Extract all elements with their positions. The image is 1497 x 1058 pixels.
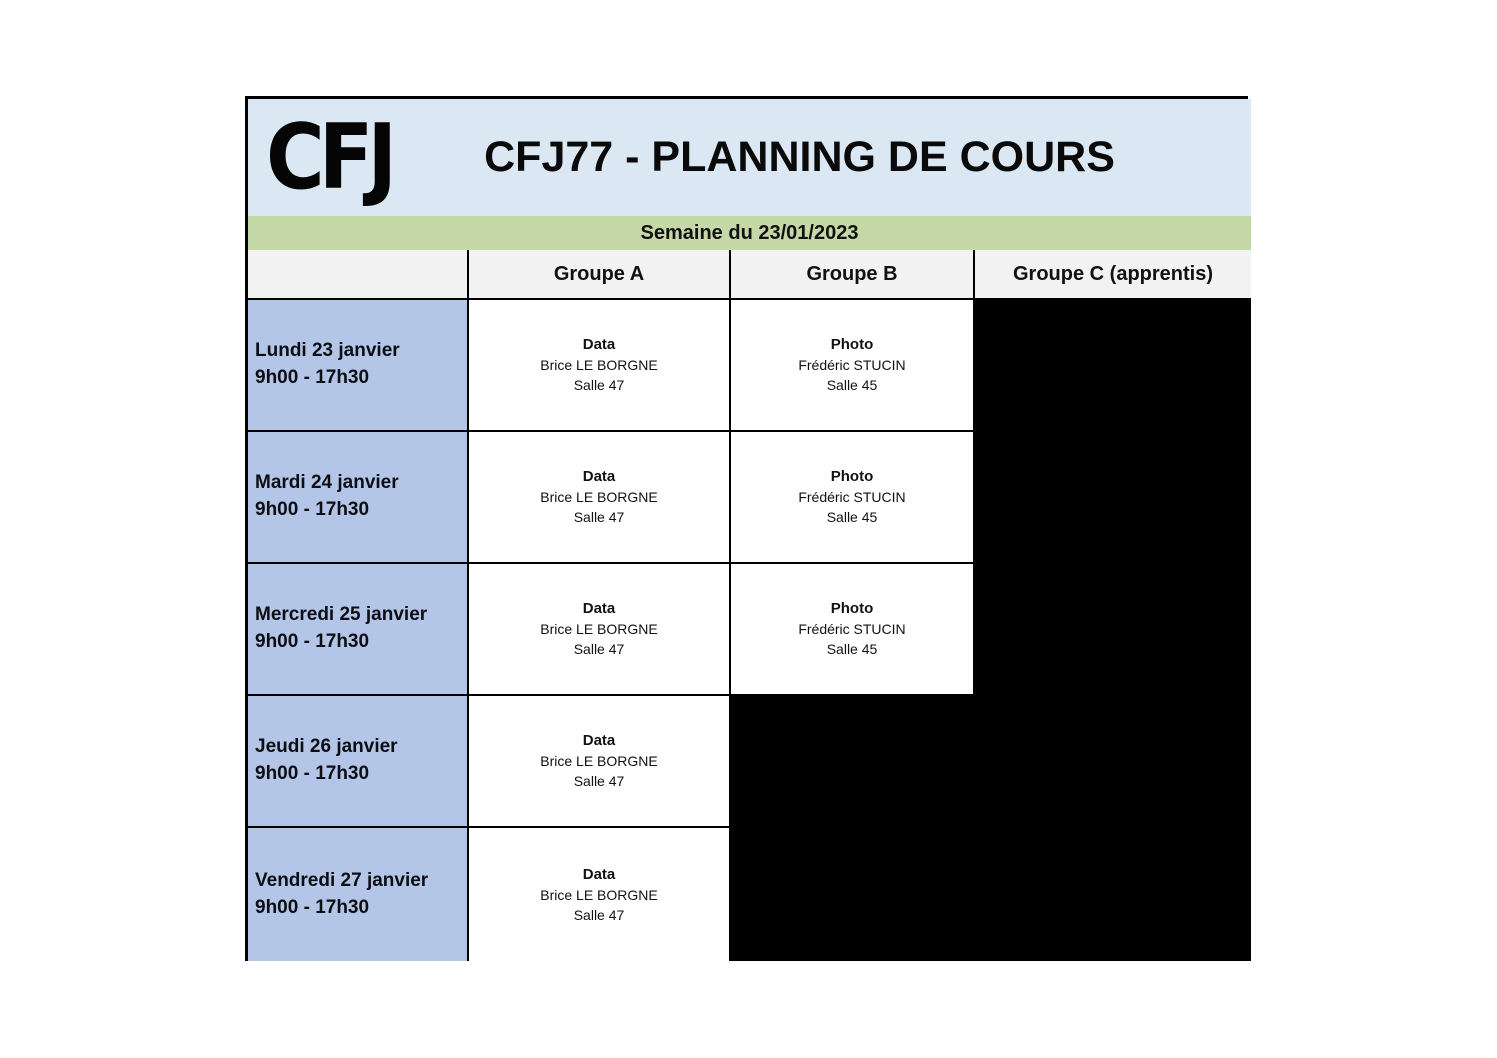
course-teacher: Brice LE BORGNE <box>540 885 657 905</box>
cfj-logo-text: CFJ <box>266 113 391 203</box>
day-label: Jeudi 26 janvier <box>255 734 467 761</box>
day-cell-mercredi: Mercredi 25 janvier 9h00 - 17h30 <box>248 564 469 696</box>
course-room: Salle 45 <box>827 639 878 659</box>
course-subject: Data <box>583 467 616 487</box>
course-teacher: Frédéric STUCIN <box>798 619 905 639</box>
course-cell-lundi-group-a: Data Brice LE BORGNE Salle 47 <box>469 300 731 432</box>
course-subject: Photo <box>831 335 874 355</box>
course-teacher: Brice LE BORGNE <box>540 751 657 771</box>
course-subject: Data <box>583 335 616 355</box>
day-label: Vendredi 27 janvier <box>255 868 467 895</box>
blocked-cell-group-b-jeudi-vendredi <box>731 696 975 961</box>
course-cell-mercredi-group-b: Photo Frédéric STUCIN Salle 45 <box>731 564 975 696</box>
day-label: Mardi 24 janvier <box>255 470 467 497</box>
course-subject: Data <box>583 599 616 619</box>
course-room: Salle 47 <box>574 375 625 395</box>
course-room: Salle 47 <box>574 639 625 659</box>
column-header-group-a: Groupe A <box>469 250 731 300</box>
column-header-group-b: Groupe B <box>731 250 975 300</box>
course-teacher: Brice LE BORGNE <box>540 355 657 375</box>
course-room: Salle 45 <box>827 507 878 527</box>
blocked-cell-group-c-week <box>975 300 1251 961</box>
page-title: CFJ77 - PLANNING DE COURS <box>408 133 1251 182</box>
course-subject: Photo <box>831 599 874 619</box>
course-subject: Photo <box>831 467 874 487</box>
day-cell-mardi: Mardi 24 janvier 9h00 - 17h30 <box>248 432 469 564</box>
planning-table: CFJ CFJ77 - PLANNING DE COURS Semaine du… <box>245 96 1248 961</box>
day-time: 9h00 - 17h30 <box>255 895 467 922</box>
course-cell-mardi-group-b: Photo Frédéric STUCIN Salle 45 <box>731 432 975 564</box>
day-cell-jeudi: Jeudi 26 janvier 9h00 - 17h30 <box>248 696 469 828</box>
course-subject: Data <box>583 865 616 885</box>
course-cell-jeudi-group-a: Data Brice LE BORGNE Salle 47 <box>469 696 731 828</box>
day-time: 9h00 - 17h30 <box>255 497 467 524</box>
course-teacher: Brice LE BORGNE <box>540 487 657 507</box>
cfj-logo: CFJ <box>248 99 408 216</box>
course-teacher: Brice LE BORGNE <box>540 619 657 639</box>
course-cell-mardi-group-a: Data Brice LE BORGNE Salle 47 <box>469 432 731 564</box>
column-header-day <box>248 250 469 300</box>
day-time: 9h00 - 17h30 <box>255 629 467 656</box>
week-banner: Semaine du 23/01/2023 <box>248 216 1251 250</box>
course-cell-mercredi-group-a: Data Brice LE BORGNE Salle 47 <box>469 564 731 696</box>
course-cell-vendredi-group-a: Data Brice LE BORGNE Salle 47 <box>469 828 731 961</box>
day-time: 9h00 - 17h30 <box>255 761 467 788</box>
course-room: Salle 47 <box>574 905 625 925</box>
course-room: Salle 45 <box>827 375 878 395</box>
day-time: 9h00 - 17h30 <box>255 365 467 392</box>
course-teacher: Frédéric STUCIN <box>798 487 905 507</box>
course-teacher: Frédéric STUCIN <box>798 355 905 375</box>
column-header-group-c: Groupe C (apprentis) <box>975 250 1251 300</box>
day-label: Lundi 23 janvier <box>255 338 467 365</box>
course-room: Salle 47 <box>574 771 625 791</box>
course-room: Salle 47 <box>574 507 625 527</box>
course-cell-lundi-group-b: Photo Frédéric STUCIN Salle 45 <box>731 300 975 432</box>
course-subject: Data <box>583 731 616 751</box>
day-label: Mercredi 25 janvier <box>255 602 467 629</box>
day-cell-vendredi: Vendredi 27 janvier 9h00 - 17h30 <box>248 828 469 961</box>
title-band: CFJ CFJ77 - PLANNING DE COURS <box>248 99 1251 216</box>
day-cell-lundi: Lundi 23 janvier 9h00 - 17h30 <box>248 300 469 432</box>
